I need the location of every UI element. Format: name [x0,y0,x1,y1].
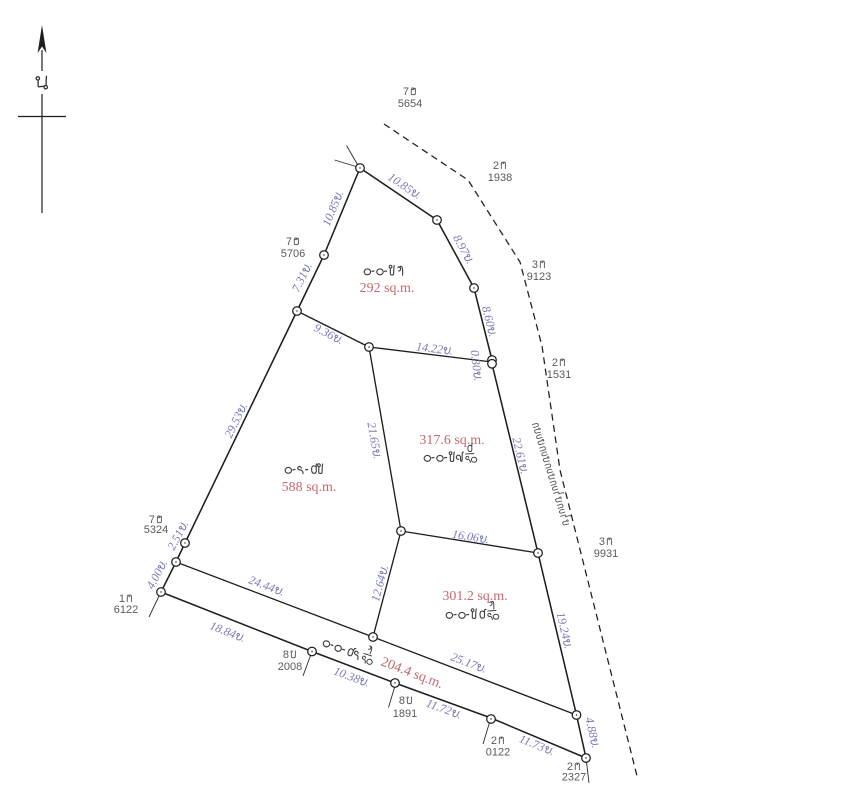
svg-text:5654: 5654 [398,98,422,110]
svg-text:588 sq.m.: 588 sq.m. [282,480,337,495]
svg-text:8: 8 [399,695,405,707]
svg-text:7: 7 [286,236,292,248]
svg-text:317.6 sq.m.: 317.6 sq.m. [419,433,484,448]
svg-text:2: 2 [491,735,497,747]
svg-text:2327: 2327 [562,772,586,784]
svg-text:9931: 9931 [594,548,618,560]
svg-text:5706: 5706 [281,248,305,260]
svg-text:0.30: 0.30 [468,349,484,372]
svg-text:1531: 1531 [547,369,571,381]
svg-text:2008: 2008 [278,661,302,673]
svg-text:0122: 0122 [486,747,510,759]
svg-text:3: 3 [532,259,538,271]
svg-text:5324: 5324 [144,524,168,536]
svg-text:2: 2 [493,160,499,172]
svg-text:9123: 9123 [527,271,551,283]
svg-text:301.2 sq.m.: 301.2 sq.m. [442,589,507,604]
svg-text:292 sq.m.: 292 sq.m. [360,281,415,296]
svg-text:1891: 1891 [393,708,417,720]
svg-text:8: 8 [283,649,289,661]
svg-text:3: 3 [599,536,605,548]
svg-text:1938: 1938 [488,172,512,184]
svg-text:2: 2 [552,357,558,369]
svg-text:7: 7 [403,86,409,98]
svg-text:6122: 6122 [114,604,138,616]
